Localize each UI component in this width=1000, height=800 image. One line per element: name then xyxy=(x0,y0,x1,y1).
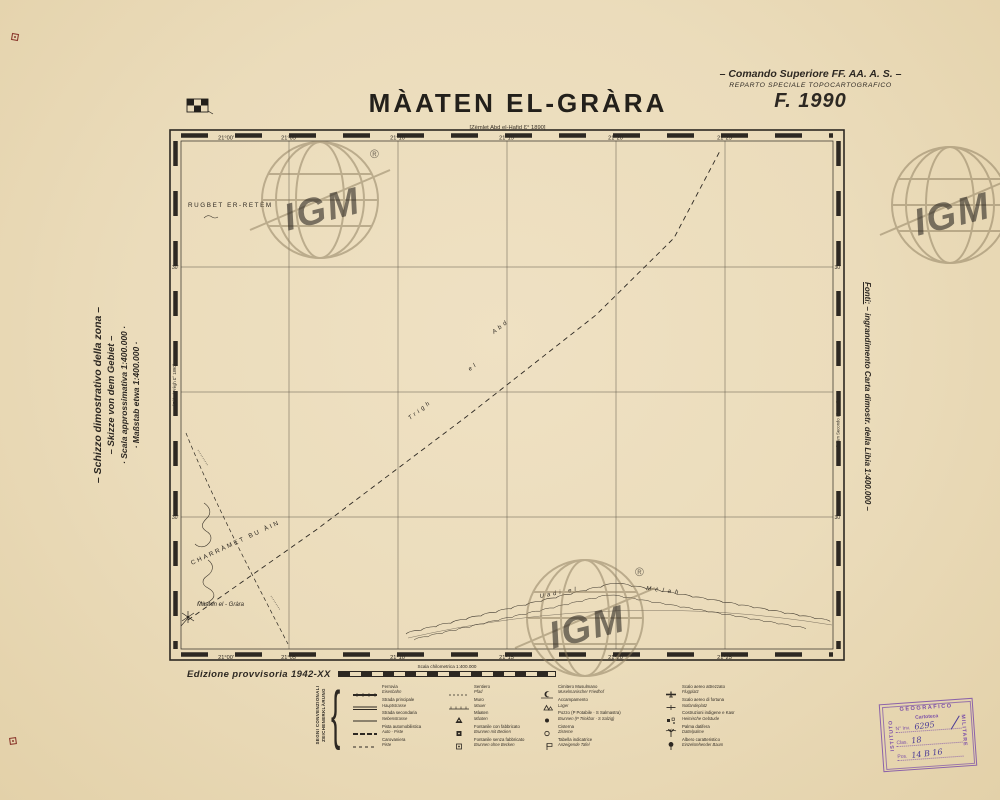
igm-registered-mark: ® xyxy=(370,147,379,161)
lon-label: 21°10' xyxy=(390,655,406,661)
legend-entry: Strada secondariaNebenstrasse xyxy=(352,710,421,723)
note-scala: · Scala approssimativa 1:400.000 · xyxy=(119,285,129,505)
chequer-registration-stamp xyxy=(186,98,214,116)
legend-column-3: Cimitero MusulmanoMuselmanischer Friedho… xyxy=(540,684,621,750)
legend-entry: Scalo aereo di fortunaNotlandeplatz xyxy=(664,697,735,710)
label-maaten-el-grara: Màaten el - Gràra xyxy=(197,602,245,608)
lon-label: 21°20' xyxy=(608,136,624,142)
lon-label: 21°00' xyxy=(218,136,234,142)
legend-entry: AccampamentoLager xyxy=(540,697,621,710)
legend-entry: CisternaZisterne xyxy=(540,724,621,737)
legend-entry: Costruzioni indigene e KasrHeimische Geb… xyxy=(664,710,735,723)
legend-entry: SentieroPfad xyxy=(448,684,524,697)
label-charramet-bu-ain: CHARRÀMET BU ÀIN xyxy=(189,517,281,566)
command-block: – Comando Superiore FF. AA. A. S. – REPA… xyxy=(718,68,903,113)
legend-heading-de: ZEICHENERKLÄRUNG xyxy=(321,683,327,747)
stamp-pos-label: Pos. xyxy=(897,753,907,760)
legend-column-1: FerroviaEisenbahn Strada principaleHaupt… xyxy=(352,684,421,750)
wadi-outlines-west xyxy=(195,216,218,604)
edge-note-right: [Alàm Secondo Ɛ° 1891] xyxy=(836,401,841,446)
legend-entry: MàatenMàaten xyxy=(448,710,524,723)
legend-column-4: Scalo aereo attrezzatoFlugplatz Scalo ae… xyxy=(664,684,735,750)
command-line2: REPARTO SPECIALE TOPOCARTOGRAFICO xyxy=(718,82,903,89)
corner-mark-bottom-left xyxy=(8,736,18,746)
lon-label: 21°00' xyxy=(218,655,234,661)
well-symbol-maaten xyxy=(182,611,194,623)
stamp-clas-value: 18 xyxy=(911,736,922,745)
igm-registered-mark: ® xyxy=(635,565,644,579)
lat-label: 30' xyxy=(172,265,179,271)
lon-label: 21°05' xyxy=(281,655,297,661)
label-el: el xyxy=(468,361,480,372)
igm-watermark-right: IGM ® xyxy=(875,130,1000,280)
stamp-inv-value: 6295 xyxy=(914,721,935,731)
legend-entry: Fontanile senza fabbricatoBrunnen ohne B… xyxy=(448,737,524,750)
legend-brace: { xyxy=(331,679,340,753)
lat-label: 30' xyxy=(172,515,179,521)
map-sheet-page: MÀATEN EL-GRÀRA [Zèmlet Abd el-Hafid Ɛ° … xyxy=(0,0,1000,800)
lat-label: 30' xyxy=(835,515,842,521)
stamp-inv-label: N° Inv. xyxy=(895,725,910,732)
corner-mark-top-left xyxy=(10,32,20,42)
lone-tree-icon xyxy=(664,738,678,756)
edition-note: Edizione provvisoria 1942-XX xyxy=(187,669,331,680)
fountain-open-icon xyxy=(448,738,470,756)
scale-bar xyxy=(338,671,556,677)
sources-label: Fonti: xyxy=(863,282,872,304)
sheet-number: F. 1990 xyxy=(718,90,903,113)
left-margin-notes: – Schizzo dimostrativo della zona – – Sk… xyxy=(92,285,156,505)
igm-library-stamp: GEOGRAFICO ISTITUTO MILITARE Cartoteca N… xyxy=(879,698,978,772)
igm-watermark-top: IGM ® xyxy=(245,125,395,275)
command-line1: – Comando Superiore FF. AA. A. S. – xyxy=(718,68,903,80)
sources-note: Fonti: – ingrandimento Carta dimostr. de… xyxy=(858,282,872,502)
lon-label: 21°15' xyxy=(499,136,515,142)
latitude-labels: 30' 30' 30' 30' xyxy=(172,265,841,521)
legend-column-2: SentieroPfad MuroMauer MàatenMàaten Font… xyxy=(448,684,524,750)
label-abd: Abd xyxy=(491,319,511,336)
legend-entry: MuroMauer xyxy=(448,697,524,710)
stamp-class-row: Clas. 18 xyxy=(896,734,962,748)
caravan-route-icon xyxy=(352,738,378,756)
legend-entry: Scalo aereo attrezzatoFlugplatz xyxy=(664,684,735,697)
stamp-clas-label: Clas. xyxy=(896,739,908,746)
legend-entry: Albero caratteristicoEinzelstehender Bau… xyxy=(664,737,735,750)
legend-entry: Pista automobilisticaAuto - Piste xyxy=(352,724,421,737)
lon-label: 21°25' xyxy=(717,136,733,142)
stamp-position-row: Pos. 14 B 16 xyxy=(897,748,963,762)
signboard-icon xyxy=(540,738,554,756)
edge-note-left: [Gèbel Frègh Ɛ° 1890] xyxy=(172,364,177,405)
stamp-pos-value: 14 B 16 xyxy=(911,748,943,760)
igm-watermark-text: IGM xyxy=(545,598,631,658)
lat-label: 30' xyxy=(835,265,842,271)
label-trigh: Trigh xyxy=(408,399,434,421)
sources-text: – ingrandimento Carta dimostr. della Lib… xyxy=(863,304,872,511)
legend-entry: Palma datiferaDattelpalme xyxy=(664,724,735,737)
legend-entry: Tabella indicatriceAnzeigende Tafel xyxy=(540,737,621,750)
legend-entry: Fontanile con fabbricatoBrunnen mit Beck… xyxy=(448,724,524,737)
legend-entry: FerroviaEisenbahn xyxy=(352,684,421,697)
lon-label: 21°25' xyxy=(717,655,733,661)
map-title: MÀATEN EL-GRÀRA xyxy=(318,88,718,119)
legend-entry: CarovanieraPiste xyxy=(352,737,421,750)
note-schizzo: – Schizzo dimostrativo della zona – xyxy=(92,285,104,505)
scale-caption: Scala chilometrica 1:400.000 xyxy=(338,664,556,669)
igm-watermark-text: IGM xyxy=(280,180,366,240)
legend-entry: Strada principaleHauptstrasse xyxy=(352,697,421,710)
legend-entry: Pozzo (P Potabile · S Salmastra)Brunnen … xyxy=(540,710,621,723)
scale-bar-block: Scala chilometrica 1:400.000 xyxy=(338,664,556,677)
igm-watermark-text: IGM xyxy=(910,185,996,245)
note-skizze: – Skizze von dem Gebiet – xyxy=(106,285,117,505)
legend-entry: Cimitero MusulmanoMuselmanischer Friedho… xyxy=(540,684,621,697)
note-massstab: · Maßstab etwa 1:400.000 · xyxy=(131,285,141,505)
